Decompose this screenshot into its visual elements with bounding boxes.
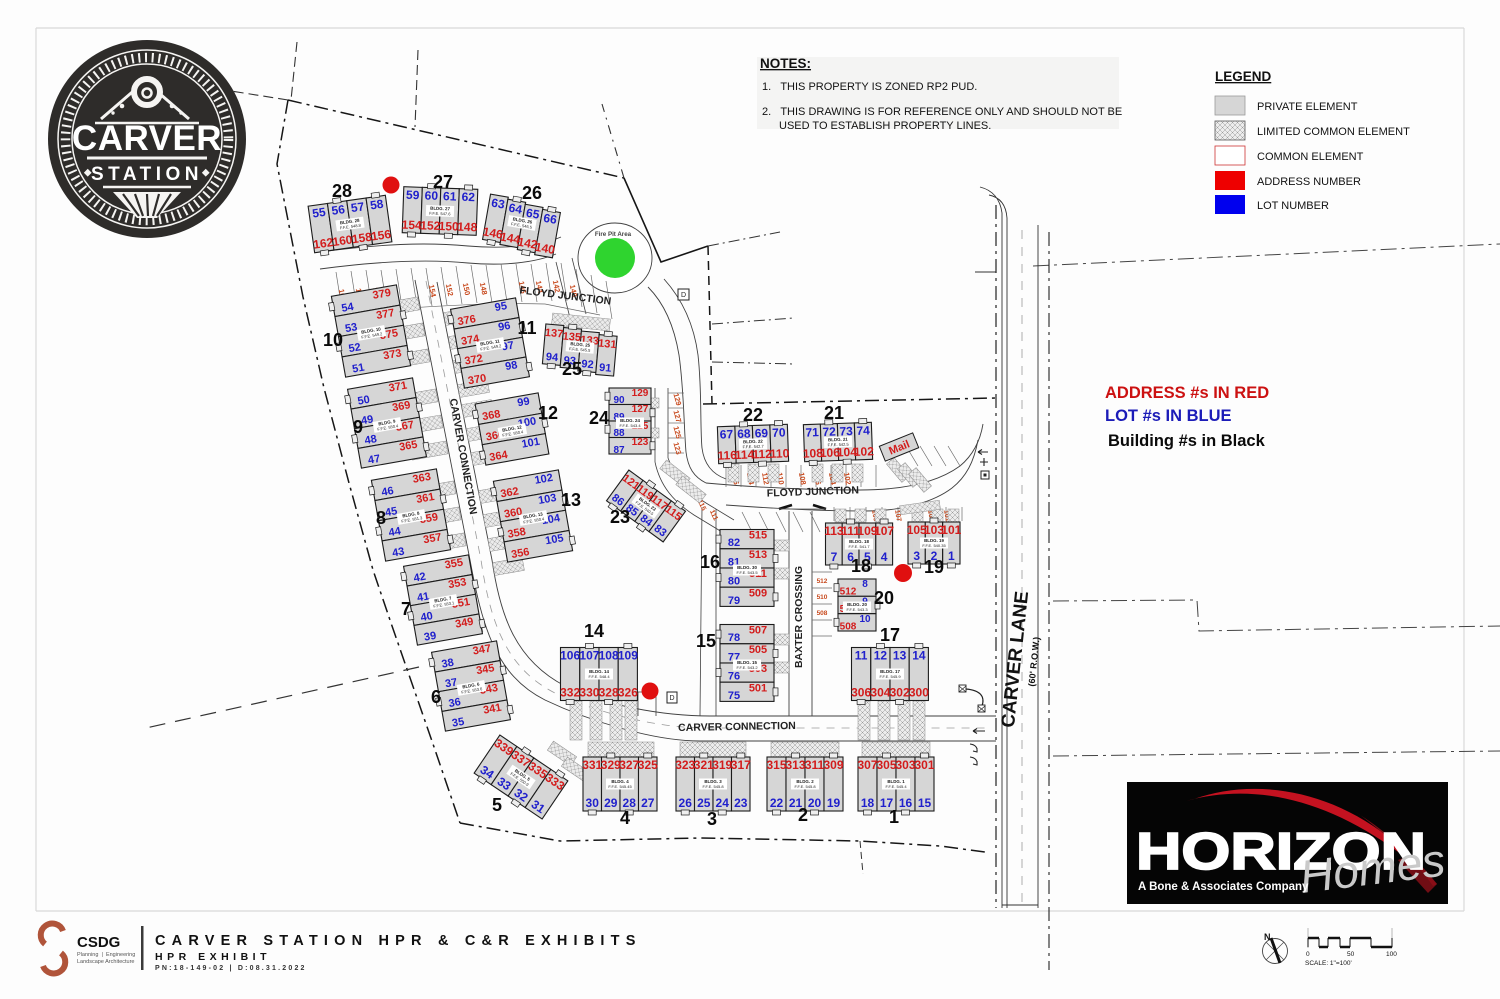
svg-text:1: 1	[889, 807, 899, 827]
svg-text:4: 4	[620, 808, 630, 828]
svg-text:80: 80	[728, 576, 740, 588]
svg-text:0: 0	[1306, 951, 1310, 958]
svg-text:91: 91	[599, 362, 612, 375]
svg-text:48: 48	[364, 433, 378, 447]
svg-text:14: 14	[584, 621, 604, 641]
svg-text:Building #s in Black: Building #s in Black	[1108, 432, 1266, 450]
svg-text:2: 2	[798, 805, 808, 825]
svg-text:F.F.E. 545.4: F.F.E. 545.4	[885, 784, 907, 789]
svg-text:42: 42	[413, 571, 427, 585]
svg-text:30: 30	[586, 796, 600, 810]
svg-text:7: 7	[831, 550, 838, 564]
svg-text:11: 11	[855, 649, 868, 663]
svg-text:27: 27	[433, 172, 453, 192]
svg-text:50: 50	[1347, 951, 1355, 958]
svg-text:75: 75	[728, 690, 740, 702]
svg-text:D: D	[669, 695, 674, 702]
svg-text:323: 323	[675, 758, 695, 772]
svg-text:Landscape Architecture: Landscape Architecture	[77, 959, 134, 965]
svg-text:COMMON ELEMENT: COMMON ELEMENT	[1257, 151, 1364, 163]
svg-text:F.F.E. 545.45: F.F.E. 545.45	[608, 784, 632, 789]
svg-text:66: 66	[542, 211, 558, 227]
svg-text:303: 303	[895, 758, 915, 772]
svg-text:307: 307	[857, 758, 877, 772]
svg-text:328: 328	[599, 686, 619, 700]
svg-text:HPR EXHIBIT: HPR EXHIBIT	[155, 951, 271, 963]
svg-text:27: 27	[641, 796, 655, 810]
svg-text:CARVER: CARVER	[72, 119, 222, 158]
svg-text:50: 50	[357, 394, 371, 408]
svg-text:512: 512	[840, 587, 857, 598]
svg-text:62: 62	[461, 190, 475, 204]
svg-text:25: 25	[562, 359, 582, 379]
svg-text:ADDRESS NUMBER: ADDRESS NUMBER	[1257, 176, 1361, 188]
svg-text:156: 156	[370, 227, 392, 244]
svg-text:74: 74	[856, 423, 870, 437]
svg-text:8: 8	[862, 579, 868, 590]
svg-text:63: 63	[490, 195, 506, 211]
svg-text:330: 330	[579, 686, 599, 700]
svg-text:106: 106	[560, 649, 580, 663]
svg-text:F.F.E. 543.3: F.F.E. 543.3	[846, 607, 868, 612]
svg-text:131: 131	[598, 338, 617, 352]
svg-text:LEGEND: LEGEND	[1215, 69, 1272, 84]
svg-text:123: 123	[632, 437, 649, 448]
svg-text:17: 17	[880, 625, 900, 645]
svg-text:127: 127	[632, 404, 649, 415]
svg-text:8: 8	[376, 508, 386, 528]
svg-text:14: 14	[912, 649, 926, 663]
svg-text:59: 59	[406, 188, 420, 202]
svg-text:64: 64	[508, 201, 524, 217]
svg-text:12: 12	[538, 403, 558, 423]
svg-text:87: 87	[613, 445, 625, 456]
svg-text:3: 3	[707, 809, 717, 829]
svg-text:F.F.E. 543.4: F.F.E. 543.4	[619, 423, 641, 428]
svg-text:11: 11	[517, 318, 536, 338]
svg-text:45: 45	[384, 505, 398, 519]
svg-text:509: 509	[749, 587, 767, 599]
svg-text:95: 95	[494, 300, 508, 314]
svg-text:15: 15	[918, 796, 932, 810]
svg-text:Fire Pit Area: Fire Pit Area	[595, 231, 632, 238]
svg-text:PN:18-149-02 | D:08.31.2022: PN:18-149-02 | D:08.31.2022	[155, 965, 307, 972]
svg-text:37: 37	[444, 676, 458, 690]
svg-text:107: 107	[874, 524, 894, 538]
svg-text:52: 52	[348, 341, 362, 355]
svg-text:F.F.E. 542.7: F.F.E. 542.7	[742, 444, 764, 450]
svg-text:40: 40	[420, 610, 434, 624]
svg-text:300: 300	[909, 686, 929, 700]
svg-text:58: 58	[369, 197, 384, 213]
svg-text:CARVER STATION HPR & C&R EXHIB: CARVER STATION HPR & C&R EXHIBITS	[155, 933, 642, 949]
svg-text:7: 7	[401, 599, 411, 619]
svg-text:2. THIS DRAWING IS FOR REFER: 2. THIS DRAWING IS FOR REFERENCE ONLY AN…	[762, 106, 1122, 118]
svg-text:25: 25	[697, 796, 711, 810]
svg-text:STATION: STATION	[91, 164, 203, 185]
svg-text:1: 1	[948, 549, 955, 563]
svg-text:90: 90	[613, 395, 625, 406]
svg-text:38: 38	[441, 657, 455, 671]
svg-text:110: 110	[770, 446, 790, 461]
svg-text:18: 18	[861, 796, 875, 810]
svg-text:508: 508	[817, 610, 828, 617]
svg-text:SCALE: 1"=100': SCALE: 1"=100'	[1305, 960, 1352, 967]
svg-text:PRIVATE ELEMENT: PRIVATE ELEMENT	[1257, 101, 1358, 113]
svg-text:92: 92	[581, 358, 594, 371]
svg-text:22: 22	[770, 796, 784, 810]
svg-text:F.F.E. 540.35: F.F.E. 540.35	[922, 543, 946, 548]
svg-text:55: 55	[311, 205, 326, 221]
svg-text:306: 306	[851, 686, 871, 700]
svg-text:109: 109	[618, 649, 638, 663]
svg-text:22: 22	[743, 405, 763, 425]
svg-text:18: 18	[851, 556, 871, 576]
svg-text:4: 4	[881, 550, 888, 564]
svg-text:513: 513	[749, 549, 767, 561]
svg-text:78: 78	[728, 632, 740, 644]
svg-text:507: 507	[749, 625, 767, 637]
svg-text:53: 53	[344, 321, 358, 335]
svg-text:505: 505	[749, 644, 767, 656]
svg-text:43: 43	[391, 546, 405, 560]
svg-text:137: 137	[544, 327, 563, 341]
svg-text:508: 508	[840, 621, 857, 632]
svg-text:LOT #s IN BLUE: LOT #s IN BLUE	[1105, 407, 1232, 425]
svg-text:315: 315	[766, 758, 786, 772]
svg-text:BAXTER CROSSING: BAXTER CROSSING	[793, 566, 805, 668]
svg-text:101: 101	[941, 523, 961, 537]
svg-text:325: 325	[638, 758, 658, 772]
svg-text:NOTES:: NOTES:	[760, 56, 811, 71]
svg-text:20: 20	[808, 796, 822, 810]
svg-text:512: 512	[817, 578, 828, 585]
svg-text:1. THIS PROPERTY IS ZONED RP: 1. THIS PROPERTY IS ZONED RP2 PUD.	[762, 81, 977, 93]
svg-text:F.F.E. 541.7: F.F.E. 541.7	[848, 544, 870, 549]
svg-text:F.F.E. 543.5: F.F.E. 543.5	[736, 570, 758, 575]
svg-text:100: 100	[1386, 951, 1397, 958]
svg-text:12: 12	[874, 649, 888, 663]
svg-text:LOT NUMBER: LOT NUMBER	[1257, 200, 1329, 212]
svg-text:10: 10	[859, 614, 871, 625]
svg-text:41: 41	[416, 590, 430, 604]
svg-text:515: 515	[749, 530, 767, 542]
svg-text:9: 9	[353, 417, 363, 437]
svg-text:28: 28	[332, 181, 352, 201]
svg-text:F.F.E. 542.5: F.F.E. 542.5	[827, 442, 849, 448]
svg-text:46: 46	[381, 485, 395, 499]
svg-text:F.F.E. 545.8: F.F.E. 545.8	[702, 784, 724, 789]
svg-text:309: 309	[823, 758, 843, 772]
svg-text:36: 36	[448, 696, 462, 710]
svg-text:96: 96	[497, 320, 511, 334]
svg-text:20: 20	[874, 588, 894, 608]
svg-text:327: 327	[619, 758, 639, 772]
svg-text:71: 71	[805, 425, 819, 439]
svg-text:332: 332	[560, 686, 580, 700]
svg-text:Planning | Engineering: Planning | Engineering	[77, 952, 135, 958]
svg-text:47: 47	[367, 453, 381, 467]
svg-text:501: 501	[749, 682, 767, 694]
svg-text:304: 304	[870, 686, 890, 700]
svg-text:5: 5	[492, 795, 502, 815]
svg-text:3: 3	[913, 549, 920, 563]
svg-text:26: 26	[679, 796, 693, 810]
svg-text:24: 24	[716, 796, 730, 810]
svg-text:319: 319	[712, 758, 732, 772]
svg-text:51: 51	[351, 362, 365, 376]
svg-text:98: 98	[504, 359, 518, 373]
svg-text:CARVER CONNECTION: CARVER CONNECTION	[678, 720, 796, 734]
svg-text:510: 510	[817, 594, 828, 601]
svg-text:102: 102	[854, 444, 875, 459]
svg-text:LIMITED COMMON ELEMENT: LIMITED COMMON ELEMENT	[1257, 126, 1410, 138]
svg-text:57: 57	[350, 199, 365, 215]
svg-text:F.F.E. 547.6: F.F.E. 547.6	[429, 211, 451, 217]
svg-text:56: 56	[331, 202, 346, 218]
svg-text:15: 15	[696, 631, 716, 651]
svg-text:313: 313	[785, 758, 805, 772]
svg-text:321: 321	[694, 758, 714, 772]
svg-text:A Bone & Associates Company: A Bone & Associates Company	[1138, 881, 1309, 893]
svg-text:21: 21	[824, 403, 844, 423]
svg-text:99: 99	[516, 395, 530, 409]
svg-text:311: 311	[805, 758, 825, 772]
svg-text:326: 326	[618, 686, 638, 700]
svg-text:USED TO ESTABLISH PROPERTY LIN: USED TO ESTABLISH PROPERTY LINES.	[779, 120, 991, 132]
svg-text:301: 301	[914, 758, 934, 772]
svg-text:108: 108	[599, 649, 619, 663]
svg-text:35: 35	[451, 716, 465, 730]
svg-text:79: 79	[728, 595, 740, 607]
svg-text:67: 67	[720, 427, 734, 441]
svg-text:24: 24	[589, 408, 609, 428]
svg-text:19: 19	[924, 557, 944, 577]
svg-text:F.F.E. 545.9: F.F.E. 545.9	[879, 674, 901, 679]
svg-text:88: 88	[613, 428, 625, 439]
svg-text:94: 94	[545, 351, 559, 364]
svg-text:107: 107	[579, 649, 599, 663]
svg-text:148: 148	[457, 220, 478, 235]
svg-text:16: 16	[700, 552, 720, 572]
svg-text:23: 23	[610, 507, 630, 527]
svg-text:302: 302	[890, 686, 910, 700]
svg-text:13: 13	[893, 649, 907, 663]
svg-text:70: 70	[772, 425, 786, 439]
svg-text:329: 329	[601, 758, 621, 772]
svg-text:CSDG: CSDG	[77, 934, 120, 951]
svg-text:76: 76	[728, 671, 740, 683]
svg-text:F.F.E. 548.4: F.F.E. 548.4	[588, 674, 610, 679]
svg-text:F.F.E. 543.2: F.F.E. 543.2	[736, 665, 758, 670]
svg-text:13: 13	[561, 490, 581, 510]
svg-text:ADDRESS #s IN RED: ADDRESS #s IN RED	[1105, 384, 1269, 402]
svg-text:F.F.E. 545.8: F.F.E. 545.8	[794, 784, 816, 789]
svg-text:82: 82	[728, 537, 740, 549]
svg-text:10: 10	[323, 330, 343, 350]
svg-text:23: 23	[734, 796, 748, 810]
svg-text:N: N	[1264, 932, 1271, 942]
svg-text:26: 26	[522, 183, 542, 203]
svg-text:29: 29	[604, 796, 618, 810]
svg-text:19: 19	[827, 796, 841, 810]
svg-text:317: 317	[731, 758, 751, 772]
svg-text:39: 39	[423, 630, 437, 644]
svg-text:331: 331	[582, 758, 602, 772]
svg-text:16: 16	[899, 796, 913, 810]
svg-text:D: D	[681, 292, 686, 299]
svg-text:6: 6	[431, 687, 441, 707]
svg-text:305: 305	[876, 758, 896, 772]
svg-text:129: 129	[632, 388, 649, 399]
